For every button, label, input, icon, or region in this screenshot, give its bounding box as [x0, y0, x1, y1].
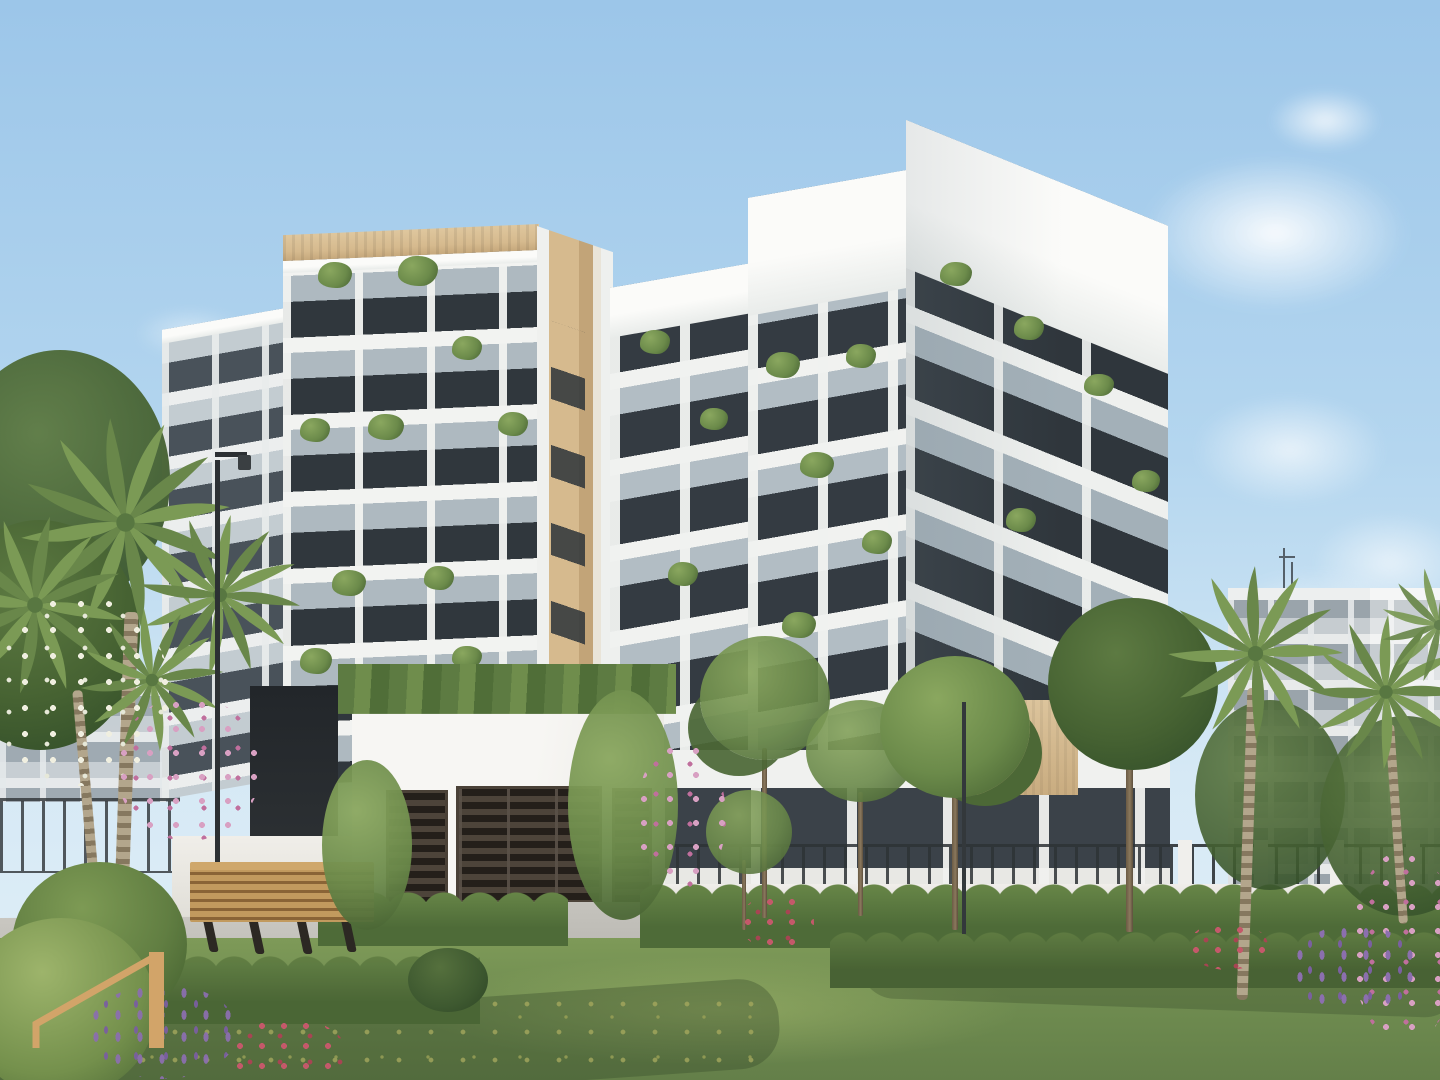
balcony-plant [332, 570, 366, 596]
garden-lamp-post [962, 702, 966, 934]
developer-logo-mark [28, 944, 178, 1056]
balcony-plant [800, 452, 834, 478]
balcony-plant [1132, 470, 1160, 492]
balcony-plant [1006, 508, 1036, 532]
balcony-plant [640, 330, 670, 354]
balcony-plant [1084, 374, 1114, 396]
gate-side-shrub [322, 760, 412, 930]
balcony-plant [668, 562, 698, 586]
red-flower-bush [740, 894, 814, 950]
red-flower-bush [232, 1018, 347, 1080]
red-flower-bush [1188, 922, 1268, 970]
crape-myrtle-shrub [636, 742, 726, 892]
tree-trunk [858, 792, 863, 916]
balcony-plant [368, 414, 404, 440]
tree-trunk [952, 788, 958, 930]
balcony-plant [700, 408, 728, 430]
balcony-plant [1014, 316, 1044, 340]
balcony-plant [452, 336, 482, 360]
tree-trunk [1126, 758, 1133, 932]
balcony-plant [862, 530, 892, 554]
pink-flower-shrub [116, 696, 261, 841]
street-lamp-head [238, 455, 251, 470]
balcony-plant [940, 262, 972, 286]
lavender-patch [1292, 924, 1417, 1014]
cloud [1250, 78, 1400, 163]
render-scene [0, 0, 1440, 1080]
balcony-plant [766, 352, 800, 378]
balcony-plant [424, 566, 454, 590]
foreground-shrub [408, 948, 488, 1012]
balcony-plant [498, 412, 528, 436]
balcony-plant [846, 344, 876, 368]
balcony-plant [398, 256, 438, 286]
tree-crown [880, 656, 1030, 798]
balcony-plant [782, 612, 816, 638]
balcony-plant [318, 262, 352, 288]
balcony-plant [300, 418, 330, 442]
